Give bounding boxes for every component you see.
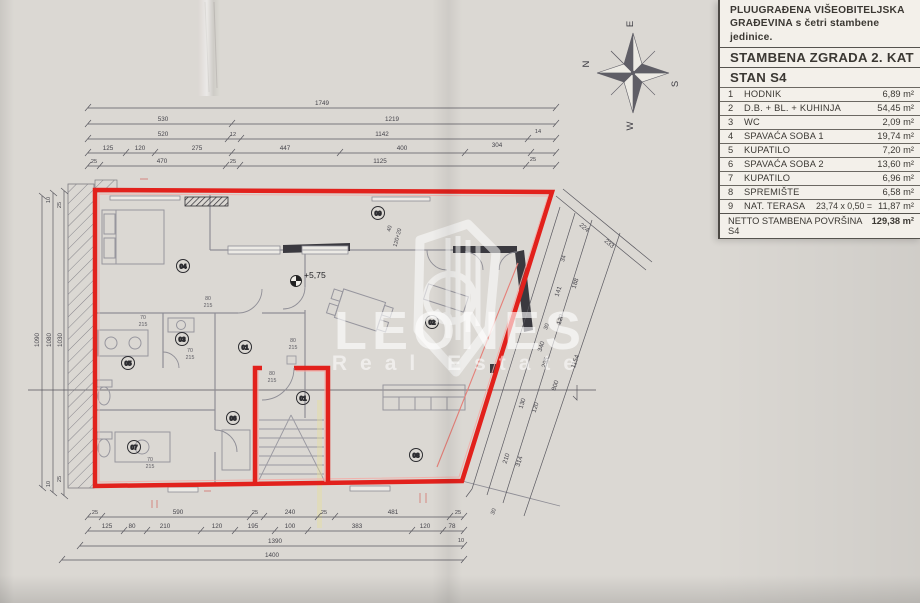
svg-text:130: 130 (518, 397, 528, 410)
row-area: 54,45 m² (877, 103, 914, 113)
row-num: 5 (728, 145, 744, 155)
elevation-value: +5,75 (304, 270, 326, 280)
svg-text:120: 120 (420, 523, 431, 530)
legend-row: 9NAT. TERASA23,74 x 0,50 =11,87 m² (720, 199, 920, 213)
svg-text:210: 210 (502, 452, 512, 465)
row-formula: 23,74 x 0,50 = (816, 201, 872, 211)
svg-text:25: 25 (530, 157, 536, 163)
legend-unit-title: STAN S4 (720, 67, 920, 87)
svg-text:275: 275 (192, 145, 203, 152)
row-area: 19,74 m² (877, 131, 914, 141)
svg-text:1154: 1154 (570, 354, 581, 370)
area-legend-table: PLUUGRAĐENA VIŠEOBITELJSKA GRAĐEVINA s č… (718, 0, 920, 239)
svg-text:215: 215 (289, 345, 298, 351)
svg-text:1749: 1749 (315, 100, 330, 107)
paper-fold-line (205, 2, 217, 92)
room-markers: 04 09 02 03 01 05 06 01 07 08 (122, 207, 439, 462)
row-name: SPAVAĆA SOBA 1 (744, 131, 877, 141)
svg-text:1390: 1390 (268, 538, 283, 545)
svg-text:25: 25 (230, 159, 236, 165)
compass-south-label: S (670, 81, 681, 87)
scanned-floor-plan-photo: +5,75 04 09 02 03 01 05 06 01 07 08 7021… (0, 0, 920, 603)
svg-text:10: 10 (46, 197, 52, 203)
row-name: WC (744, 117, 882, 127)
svg-text:215: 215 (204, 303, 213, 309)
svg-text:80: 80 (290, 338, 296, 344)
svg-text:25: 25 (252, 510, 258, 516)
svg-text:224: 224 (578, 222, 591, 234)
svg-text:10: 10 (46, 481, 52, 487)
svg-text:25: 25 (57, 202, 63, 208)
svg-text:195: 195 (248, 523, 259, 530)
row-area: 2,09 m² (882, 117, 914, 127)
legend-building-title: STAMBENA ZGRADA 2. KAT (720, 47, 920, 67)
svg-text:70: 70 (187, 348, 193, 354)
row-name: KUPATILO (744, 173, 882, 183)
svg-text:70: 70 (140, 315, 146, 321)
svg-text:30: 30 (543, 323, 551, 331)
svg-text:481: 481 (388, 509, 399, 516)
legend-row: 4SPAVAĆA SOBA 119,74 m² (720, 129, 920, 143)
svg-text:100: 100 (285, 523, 296, 530)
svg-text:383: 383 (352, 523, 363, 530)
legend-header: PLUUGRAĐENA VIŠEOBITELJSKA GRAĐEVINA s č… (720, 0, 920, 47)
room-marker: 09 (374, 211, 382, 218)
svg-text:215: 215 (139, 322, 148, 328)
svg-text:530: 530 (158, 116, 169, 123)
svg-text:70: 70 (147, 457, 153, 463)
svg-text:233: 233 (603, 238, 616, 250)
compass-north-label: N (581, 60, 592, 67)
svg-text:120: 120 (531, 401, 541, 414)
hatched-existing-wall (68, 180, 117, 488)
row-area: 6,96 m² (882, 173, 914, 183)
row-name: NAT. TERASA (744, 201, 816, 211)
row-num: 8 (728, 187, 744, 197)
windows (110, 196, 430, 492)
highlighter-mark (317, 400, 322, 528)
svg-text:590: 590 (173, 509, 184, 516)
dimension-labels-left: 1090 1080 1030 10 25 10 25 (34, 197, 64, 487)
svg-text:25: 25 (91, 159, 97, 165)
svg-text:12: 12 (230, 132, 236, 138)
legend-total-row: NETTO STAMBENA POVRŠINA S4 129,38 m² (720, 213, 920, 239)
svg-text:1219: 1219 (385, 116, 400, 123)
svg-text:314: 314 (515, 455, 525, 468)
svg-text:1125: 1125 (373, 158, 387, 165)
svg-text:215: 215 (146, 464, 155, 470)
compass-rose: E N S W (581, 21, 681, 131)
svg-text:1080: 1080 (46, 333, 53, 348)
svg-text:80: 80 (128, 523, 136, 530)
red-pen-marks (140, 179, 426, 508)
row-area: 6,58 m² (882, 187, 914, 197)
svg-text:120: 120 (556, 313, 566, 326)
row-num: 6 (728, 159, 744, 169)
svg-text:120+20: 120+20 (393, 228, 404, 248)
svg-text:10: 10 (458, 538, 464, 544)
svg-text:125: 125 (102, 523, 113, 530)
svg-text:78: 78 (448, 523, 456, 530)
svg-text:1030: 1030 (57, 333, 64, 348)
dimension-labels-bottom: 25590 25240 25481 25 12580 210120 195100… (92, 509, 464, 559)
legend-row: 2D.B. + BL. + KUHINJA54,45 m² (720, 101, 920, 115)
svg-text:400: 400 (397, 145, 408, 152)
dark-wall-segments (185, 197, 533, 373)
row-num: 3 (728, 117, 744, 127)
svg-text:1090: 1090 (34, 333, 41, 348)
svg-text:447: 447 (280, 145, 291, 152)
svg-text:40: 40 (386, 225, 393, 233)
legend-row: 6SPAVAĆA SOBA 213,60 m² (720, 157, 920, 171)
row-area: 13,60 m² (877, 159, 914, 169)
legend-row: 7KUPATILO6,96 m² (720, 171, 920, 185)
legend-row: 3WC2,09 m² (720, 115, 920, 129)
row-num: 2 (728, 103, 744, 113)
room-marker: 02 (428, 320, 436, 327)
room-marker: 01 (241, 345, 249, 352)
row-num: 9 (728, 201, 744, 211)
room-marker: 08 (412, 453, 420, 460)
legend-header-line1: PLUUGRAĐENA VIŠEOBITELJSKA (730, 4, 916, 17)
row-num: 1 (728, 89, 744, 99)
row-name: HODNIK (744, 89, 882, 99)
svg-text:188: 188 (571, 277, 581, 290)
svg-text:125: 125 (103, 145, 114, 152)
svg-text:30: 30 (490, 508, 498, 516)
svg-text:215: 215 (268, 378, 277, 384)
legend-row: 1HODNIK6,89 m² (720, 87, 920, 101)
total-area: 129,38 m² (872, 216, 914, 236)
room-marker: 04 (179, 264, 187, 271)
room-marker: 03 (178, 337, 186, 344)
svg-text:470: 470 (157, 158, 168, 165)
svg-text:520: 520 (158, 131, 169, 138)
svg-text:25: 25 (321, 510, 327, 516)
row-name: SPAVAĆA SOBA 2 (744, 159, 877, 169)
svg-text:295: 295 (541, 356, 551, 369)
room-marker: 01 (299, 396, 307, 403)
watermark-lion-logo (418, 224, 496, 372)
compass-east-label: E (625, 21, 636, 27)
svg-text:340: 340 (537, 340, 547, 353)
svg-text:80: 80 (205, 296, 211, 302)
svg-text:1400: 1400 (265, 552, 280, 559)
svg-text:304: 304 (492, 142, 503, 149)
svg-text:240: 240 (285, 509, 296, 516)
svg-text:25: 25 (455, 510, 461, 516)
row-name: D.B. + BL. + KUHINJA (744, 103, 877, 113)
room-marker: 05 (124, 361, 132, 368)
total-label: NETTO STAMBENA POVRŠINA S4 (728, 216, 872, 236)
svg-text:141: 141 (554, 285, 564, 298)
svg-text:210: 210 (160, 523, 171, 530)
svg-text:80: 80 (269, 371, 275, 377)
dimension-chains-diagonal (466, 189, 652, 516)
legend-row: 5KUPATILO7,20 m² (720, 143, 920, 157)
dimension-chains-bottom (59, 513, 467, 563)
row-area: 6,89 m² (882, 89, 914, 99)
row-name: KUPATILO (744, 145, 882, 155)
dimension-labels-top: 1749 5301219 52012 114214 125120 275447 … (91, 100, 541, 165)
row-name: SPREMIŠTE (744, 187, 882, 197)
room-marker: 06 (229, 416, 237, 423)
svg-text:25: 25 (92, 510, 98, 516)
row-num: 4 (728, 131, 744, 141)
svg-text:120: 120 (135, 145, 146, 152)
legend-header-line2: GRAĐEVINA s četri stambene jedinice. (730, 17, 916, 44)
svg-text:14: 14 (535, 129, 541, 135)
row-area: 7,20 m² (882, 145, 914, 155)
room-marker: 07 (130, 445, 138, 452)
svg-text:34: 34 (560, 255, 568, 263)
row-area: 11,87 m² (878, 201, 914, 211)
compass-west-label: W (625, 121, 636, 130)
elevation-marker: +5,75 (291, 270, 326, 287)
svg-text:1142: 1142 (375, 131, 389, 138)
legend-row: 8SPREMIŠTE6,58 m² (720, 185, 920, 199)
row-num: 7 (728, 173, 744, 183)
svg-text:215: 215 (186, 355, 195, 361)
svg-text:25: 25 (57, 476, 63, 482)
svg-text:120: 120 (212, 523, 223, 530)
